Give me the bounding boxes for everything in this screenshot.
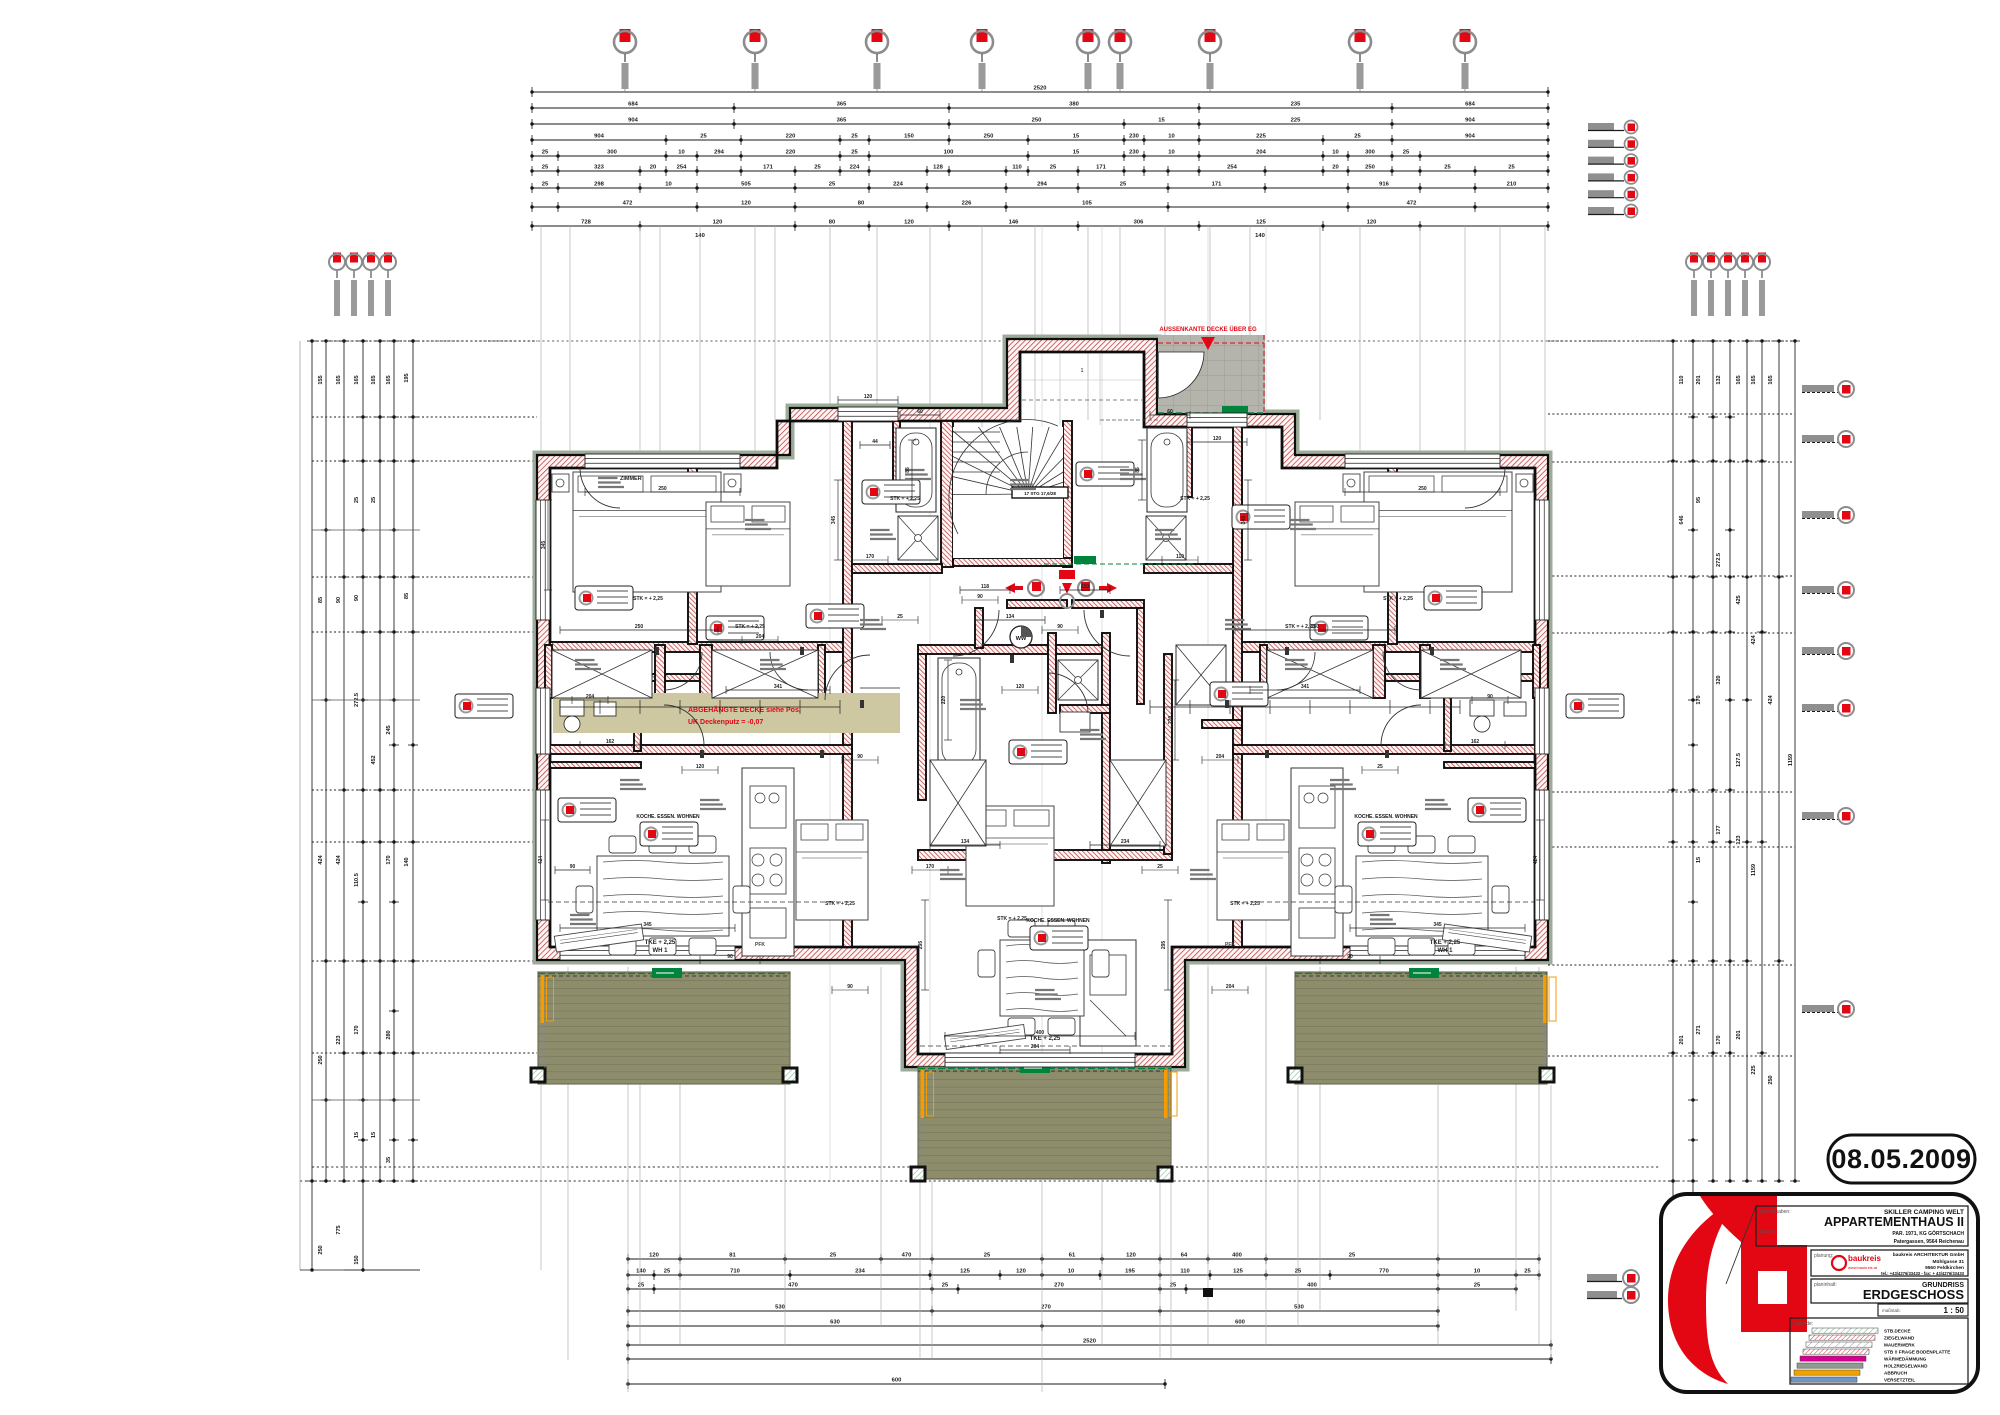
svg-text:10: 10 bbox=[678, 150, 684, 156]
svg-text:904: 904 bbox=[1465, 118, 1475, 124]
svg-text:120: 120 bbox=[1126, 1253, 1136, 1259]
svg-text:470: 470 bbox=[902, 1253, 912, 1259]
svg-text:170: 170 bbox=[1696, 695, 1702, 704]
svg-text:90: 90 bbox=[336, 597, 342, 603]
svg-text:60: 60 bbox=[1167, 409, 1173, 415]
svg-text:85: 85 bbox=[905, 467, 911, 473]
svg-text:STK = + 2,25: STK = + 2,25 bbox=[1383, 596, 1413, 602]
svg-text:224: 224 bbox=[850, 165, 860, 171]
svg-text:Patergassen, 9564 Reichenau: Patergassen, 9564 Reichenau bbox=[1894, 1239, 1964, 1245]
svg-text:KOCHE. ESSEN. WOHNEN: KOCHE. ESSEN. WOHNEN bbox=[1026, 918, 1090, 924]
svg-text:25: 25 bbox=[942, 1283, 949, 1289]
svg-text:VERSETZTEIL: VERSETZTEIL bbox=[1884, 1378, 1915, 1383]
svg-text:95: 95 bbox=[1696, 497, 1702, 503]
svg-text:125: 125 bbox=[960, 1269, 970, 1275]
svg-text:ABBRUCH: ABBRUCH bbox=[1884, 1371, 1908, 1376]
svg-text:365: 365 bbox=[837, 102, 847, 108]
svg-text:323: 323 bbox=[594, 165, 604, 171]
svg-text:WH 1: WH 1 bbox=[1438, 948, 1454, 954]
svg-text:170: 170 bbox=[926, 864, 935, 870]
svg-text:306: 306 bbox=[1134, 220, 1144, 226]
svg-text:125: 125 bbox=[1256, 220, 1266, 226]
svg-text:646: 646 bbox=[1679, 515, 1685, 524]
svg-text:400: 400 bbox=[1036, 1030, 1045, 1036]
svg-text:MAUERWERK: MAUERWERK bbox=[1884, 1343, 1915, 1348]
svg-text:20: 20 bbox=[650, 165, 656, 171]
svg-text:planung:: planung: bbox=[1814, 1253, 1833, 1259]
svg-text:250: 250 bbox=[984, 134, 994, 140]
svg-text:1159: 1159 bbox=[1751, 864, 1757, 876]
svg-text:204: 204 bbox=[586, 694, 595, 700]
svg-text:25: 25 bbox=[1403, 150, 1410, 156]
svg-text:www.baukreis.at: www.baukreis.at bbox=[1848, 1265, 1878, 1270]
svg-text:15: 15 bbox=[1073, 150, 1080, 156]
svg-text:234: 234 bbox=[1121, 839, 1130, 845]
svg-text:15: 15 bbox=[1696, 857, 1702, 863]
svg-text:223: 223 bbox=[336, 1035, 342, 1044]
svg-text:165: 165 bbox=[386, 375, 392, 384]
svg-text:2520: 2520 bbox=[1034, 86, 1047, 92]
svg-text:25: 25 bbox=[1157, 864, 1163, 870]
svg-text:baukreis: baukreis bbox=[1848, 1254, 1881, 1263]
svg-text:25: 25 bbox=[542, 165, 549, 171]
svg-text:WH 1: WH 1 bbox=[653, 948, 669, 954]
svg-text:90: 90 bbox=[727, 954, 733, 960]
svg-text:90: 90 bbox=[847, 984, 853, 990]
svg-text:171: 171 bbox=[1096, 165, 1106, 171]
svg-text:120: 120 bbox=[741, 201, 751, 207]
svg-text:295: 295 bbox=[1161, 941, 1167, 950]
svg-text:424: 424 bbox=[336, 854, 342, 864]
svg-text:20: 20 bbox=[1332, 165, 1338, 171]
svg-text:424: 424 bbox=[1751, 634, 1757, 644]
svg-text:294: 294 bbox=[714, 150, 724, 156]
svg-text:201: 201 bbox=[1679, 1035, 1685, 1044]
svg-text:25: 25 bbox=[851, 134, 858, 140]
svg-text:25: 25 bbox=[1295, 1269, 1302, 1275]
svg-text:294: 294 bbox=[1037, 182, 1047, 188]
svg-text:165: 165 bbox=[1768, 375, 1774, 384]
svg-text:271: 271 bbox=[1696, 1025, 1702, 1034]
svg-text:250: 250 bbox=[658, 486, 667, 492]
svg-text:STK = + 2,25: STK = + 2,25 bbox=[633, 596, 663, 602]
svg-text:125: 125 bbox=[1233, 1269, 1243, 1275]
svg-text:170: 170 bbox=[354, 1025, 360, 1034]
svg-text:120: 120 bbox=[713, 220, 723, 226]
svg-text:775: 775 bbox=[336, 1225, 342, 1234]
svg-text:25: 25 bbox=[700, 134, 707, 140]
svg-text:250: 250 bbox=[318, 1245, 324, 1254]
svg-text:STK = + 2,25: STK = + 2,25 bbox=[1180, 496, 1210, 502]
svg-text:35: 35 bbox=[386, 1157, 392, 1163]
svg-text:PAR. 1971, KG GÖRTSCHACH: PAR. 1971, KG GÖRTSCHACH bbox=[1892, 1230, 1964, 1237]
svg-text:81: 81 bbox=[729, 1253, 736, 1259]
svg-text:118: 118 bbox=[981, 584, 989, 590]
svg-text:128: 128 bbox=[933, 165, 943, 171]
svg-text:400: 400 bbox=[1307, 1283, 1317, 1289]
svg-text:424: 424 bbox=[318, 854, 324, 864]
svg-text:224: 224 bbox=[893, 182, 903, 188]
svg-text:25: 25 bbox=[1444, 165, 1451, 171]
svg-text:110: 110 bbox=[1081, 584, 1089, 590]
svg-text:WÄRMEDÄMMUNG: WÄRMEDÄMMUNG bbox=[1884, 1356, 1927, 1362]
svg-text:171: 171 bbox=[1212, 182, 1222, 188]
svg-text:220: 220 bbox=[786, 150, 796, 156]
svg-text:341: 341 bbox=[1301, 684, 1310, 690]
svg-text:220: 220 bbox=[786, 134, 796, 140]
svg-text:204: 204 bbox=[1226, 984, 1235, 990]
svg-text:25: 25 bbox=[664, 1269, 671, 1275]
svg-text:150: 150 bbox=[354, 1255, 360, 1264]
svg-text:195: 195 bbox=[404, 373, 410, 382]
svg-text:PFK: PFK bbox=[1225, 942, 1235, 948]
svg-text:150: 150 bbox=[904, 134, 914, 140]
svg-text:60: 60 bbox=[917, 409, 923, 415]
svg-text:AUSSENKANTE DECKE ÜBER EG: AUSSENKANTE DECKE ÜBER EG bbox=[1159, 326, 1257, 333]
svg-text:1: 1 bbox=[1081, 368, 1084, 374]
svg-text:424: 424 bbox=[1768, 694, 1774, 704]
svg-text:225: 225 bbox=[1291, 118, 1301, 124]
svg-text:120: 120 bbox=[1016, 1269, 1026, 1275]
svg-text:ZIEGELWAND: ZIEGELWAND bbox=[1884, 1336, 1915, 1341]
svg-text:470: 470 bbox=[788, 1283, 798, 1289]
svg-text:legende:: legende: bbox=[1794, 1321, 1813, 1327]
svg-text:tel.: +43/4276/33433 - fax: +: tel.: +43/4276/33433 - fax: + 43/4276/33… bbox=[1881, 1271, 1965, 1276]
svg-text:STK = + 2,25: STK = + 2,25 bbox=[890, 496, 920, 502]
svg-text:162: 162 bbox=[606, 739, 615, 745]
svg-text:345: 345 bbox=[1433, 922, 1442, 928]
svg-text:530: 530 bbox=[1294, 1305, 1304, 1311]
svg-text:ERDGESCHOSS: ERDGESCHOSS bbox=[1863, 1287, 1964, 1302]
svg-text:165: 165 bbox=[336, 375, 342, 384]
svg-text:15: 15 bbox=[1073, 134, 1080, 140]
svg-text:254: 254 bbox=[677, 165, 687, 171]
svg-text:110: 110 bbox=[1679, 375, 1685, 384]
svg-text:127.5: 127.5 bbox=[1736, 753, 1742, 767]
svg-text:380: 380 bbox=[1069, 102, 1079, 108]
svg-text:110: 110 bbox=[1012, 165, 1021, 171]
svg-text:100: 100 bbox=[944, 150, 954, 156]
svg-text:1159: 1159 bbox=[1788, 754, 1794, 766]
svg-text:254: 254 bbox=[1227, 165, 1237, 171]
svg-text:2520: 2520 bbox=[1083, 1339, 1096, 1345]
svg-text:TKE + 2,25: TKE + 2,25 bbox=[645, 940, 676, 946]
svg-text:HOLZRIEGELWAND: HOLZRIEGELWAND bbox=[1884, 1364, 1928, 1369]
svg-text:15: 15 bbox=[354, 1132, 360, 1138]
svg-text:530: 530 bbox=[775, 1305, 785, 1311]
svg-text:TKE + 2,25: TKE + 2,25 bbox=[1430, 940, 1461, 946]
svg-text:90: 90 bbox=[1347, 954, 1353, 960]
svg-text:904: 904 bbox=[594, 134, 604, 140]
svg-text:630: 630 bbox=[830, 1320, 840, 1326]
svg-text:210: 210 bbox=[1507, 182, 1517, 188]
svg-text:345: 345 bbox=[1241, 516, 1247, 525]
svg-text:250: 250 bbox=[1311, 624, 1320, 630]
svg-text:10: 10 bbox=[1168, 134, 1174, 140]
svg-text:PFK: PFK bbox=[755, 942, 765, 948]
svg-text:STB !! FRAGE BODENPLATTE: STB !! FRAGE BODENPLATTE bbox=[1884, 1350, 1950, 1355]
svg-text:25: 25 bbox=[984, 1253, 991, 1259]
svg-text:155: 155 bbox=[318, 375, 324, 384]
svg-text:170: 170 bbox=[866, 554, 875, 560]
svg-text:planinhalt:: planinhalt: bbox=[1814, 1282, 1837, 1288]
svg-text:25: 25 bbox=[638, 1283, 645, 1289]
svg-text:452: 452 bbox=[371, 755, 377, 764]
svg-text:250: 250 bbox=[1032, 118, 1042, 124]
svg-text:204: 204 bbox=[1031, 1044, 1040, 1050]
svg-text:140: 140 bbox=[1255, 233, 1265, 239]
svg-text:472: 472 bbox=[1407, 201, 1417, 207]
svg-text:10: 10 bbox=[665, 182, 671, 188]
svg-text:25: 25 bbox=[542, 150, 549, 156]
svg-text:710: 710 bbox=[730, 1269, 740, 1275]
svg-text:728: 728 bbox=[581, 220, 591, 226]
svg-text:195: 195 bbox=[1125, 1269, 1135, 1275]
svg-text:270: 270 bbox=[1054, 1283, 1064, 1289]
svg-text:120: 120 bbox=[696, 764, 705, 770]
svg-text:25: 25 bbox=[1508, 165, 1515, 171]
svg-text:204: 204 bbox=[1256, 150, 1266, 156]
svg-text:STK = + 2,25: STK = + 2,25 bbox=[997, 916, 1027, 922]
svg-text:220: 220 bbox=[1168, 716, 1174, 725]
svg-text:85: 85 bbox=[404, 593, 410, 599]
svg-text:505: 505 bbox=[741, 182, 751, 188]
svg-text:25: 25 bbox=[354, 497, 360, 503]
svg-text:bauort:: bauort: bbox=[1760, 1229, 1776, 1235]
svg-text:123: 123 bbox=[1736, 835, 1742, 844]
svg-text:25: 25 bbox=[851, 150, 858, 156]
svg-text:25: 25 bbox=[897, 614, 903, 620]
svg-text:25: 25 bbox=[814, 165, 821, 171]
svg-text:140: 140 bbox=[636, 1269, 646, 1275]
svg-text:08.05.2009: 08.05.2009 bbox=[1831, 1144, 1971, 1174]
svg-text:684: 684 bbox=[1465, 102, 1475, 108]
svg-text:64: 64 bbox=[1181, 1253, 1188, 1259]
svg-text:600: 600 bbox=[1235, 1320, 1245, 1326]
svg-text:250: 250 bbox=[318, 1055, 324, 1064]
svg-text:APPARTEMENTHAUS II: APPARTEMENTHAUS II bbox=[1824, 1215, 1964, 1229]
svg-text:165: 165 bbox=[1736, 375, 1742, 384]
svg-text:225: 225 bbox=[1256, 134, 1266, 140]
svg-text:Mühlgasse 31: Mühlgasse 31 bbox=[1933, 1259, 1965, 1265]
svg-text:345: 345 bbox=[643, 922, 652, 928]
svg-text:25: 25 bbox=[1120, 182, 1127, 188]
svg-text:472: 472 bbox=[623, 201, 633, 207]
svg-text:105: 105 bbox=[1082, 201, 1092, 207]
svg-text:916: 916 bbox=[1379, 182, 1389, 188]
svg-text:298: 298 bbox=[594, 182, 604, 188]
svg-text:120: 120 bbox=[1213, 436, 1222, 442]
svg-text:365: 365 bbox=[837, 118, 847, 124]
svg-text:165: 165 bbox=[354, 375, 360, 384]
svg-text:270: 270 bbox=[1041, 1305, 1051, 1311]
svg-text:KOCHE. ESSEN. WOHNEN: KOCHE. ESSEN. WOHNEN bbox=[636, 814, 700, 820]
svg-text:TKE + 2,25: TKE + 2,25 bbox=[1030, 1036, 1061, 1042]
svg-text:10: 10 bbox=[1474, 1269, 1480, 1275]
svg-text:10: 10 bbox=[1168, 150, 1174, 156]
svg-text:220: 220 bbox=[941, 696, 947, 705]
svg-text:90: 90 bbox=[1057, 624, 1063, 630]
svg-text:165: 165 bbox=[371, 375, 377, 384]
svg-text:90: 90 bbox=[1487, 694, 1493, 700]
svg-text:424: 424 bbox=[538, 856, 544, 865]
svg-text:25: 25 bbox=[542, 182, 549, 188]
svg-text:300: 300 bbox=[607, 150, 617, 156]
svg-text:425: 425 bbox=[1736, 595, 1742, 604]
svg-text:110: 110 bbox=[1176, 554, 1184, 560]
svg-text:345: 345 bbox=[831, 516, 837, 525]
svg-text:STK = + 2,25: STK = + 2,25 bbox=[735, 624, 765, 630]
svg-text:UK Deckenputz = -0,07: UK Deckenputz = -0,07 bbox=[688, 719, 763, 726]
svg-text:245: 245 bbox=[386, 725, 392, 734]
svg-text:25: 25 bbox=[1524, 1269, 1531, 1275]
svg-text:400: 400 bbox=[1232, 1253, 1242, 1259]
svg-text:KOCHE. ESSEN. WOHNEN: KOCHE. ESSEN. WOHNEN bbox=[1354, 814, 1418, 820]
svg-text:170: 170 bbox=[386, 855, 392, 864]
svg-text:85: 85 bbox=[1135, 467, 1141, 473]
svg-text:272.5: 272.5 bbox=[1716, 553, 1722, 567]
svg-text:204: 204 bbox=[756, 634, 765, 640]
svg-text:345: 345 bbox=[541, 541, 547, 550]
svg-text:170: 170 bbox=[1716, 1035, 1722, 1044]
svg-text:770: 770 bbox=[1379, 1269, 1389, 1275]
svg-text:134: 134 bbox=[1006, 614, 1015, 620]
svg-text:204: 204 bbox=[1216, 754, 1225, 760]
svg-text:684: 684 bbox=[628, 102, 638, 108]
svg-text:15: 15 bbox=[371, 1132, 377, 1138]
svg-text:177: 177 bbox=[1716, 825, 1722, 834]
svg-text:25: 25 bbox=[1377, 764, 1383, 770]
svg-text:201: 201 bbox=[1696, 375, 1702, 384]
svg-text:STK = + 2,25: STK = + 2,25 bbox=[1230, 901, 1260, 907]
svg-text:280: 280 bbox=[386, 1030, 392, 1039]
svg-text:226: 226 bbox=[962, 201, 972, 207]
svg-text:201: 201 bbox=[1736, 1030, 1742, 1039]
svg-text:120: 120 bbox=[1367, 220, 1377, 226]
svg-text:90: 90 bbox=[354, 595, 360, 601]
svg-text:120: 120 bbox=[904, 220, 914, 226]
svg-text:10: 10 bbox=[1068, 1269, 1074, 1275]
svg-text:90: 90 bbox=[977, 594, 983, 600]
svg-text:250: 250 bbox=[1418, 486, 1427, 492]
svg-text:15: 15 bbox=[1158, 118, 1165, 124]
svg-text:25: 25 bbox=[1474, 1283, 1481, 1289]
svg-text:25: 25 bbox=[1050, 165, 1057, 171]
svg-text:25: 25 bbox=[1349, 1253, 1356, 1259]
svg-text:90: 90 bbox=[857, 754, 863, 760]
svg-text:225: 225 bbox=[1751, 1065, 1757, 1074]
svg-text:85: 85 bbox=[318, 597, 324, 603]
svg-text:STB.DECKE: STB.DECKE bbox=[1884, 1329, 1911, 1334]
svg-text:320: 320 bbox=[1716, 675, 1722, 684]
svg-text:25: 25 bbox=[1354, 134, 1361, 140]
svg-text:120: 120 bbox=[649, 1253, 659, 1259]
svg-text:230: 230 bbox=[1129, 134, 1139, 140]
svg-text:80: 80 bbox=[829, 220, 835, 226]
svg-text:250: 250 bbox=[1365, 165, 1375, 171]
svg-text:90: 90 bbox=[570, 864, 576, 870]
svg-text:341: 341 bbox=[774, 684, 783, 690]
svg-text:25: 25 bbox=[371, 497, 377, 503]
svg-text:bauvorhaben:: bauvorhaben: bbox=[1760, 1209, 1791, 1215]
svg-text:44: 44 bbox=[872, 439, 878, 445]
svg-text:baukreis ARCHITEKTUR GmbH: baukreis ARCHITEKTUR GmbH bbox=[1893, 1252, 1965, 1258]
svg-text:230: 230 bbox=[1129, 150, 1139, 156]
svg-text:146: 146 bbox=[1009, 220, 1019, 226]
svg-text:132: 132 bbox=[1716, 375, 1722, 384]
svg-text:80: 80 bbox=[858, 201, 864, 207]
svg-text:110: 110 bbox=[1180, 1269, 1189, 1275]
svg-text:140: 140 bbox=[404, 857, 410, 866]
svg-text:120: 120 bbox=[864, 394, 873, 400]
svg-text:234: 234 bbox=[855, 1269, 865, 1275]
svg-text:904: 904 bbox=[1465, 134, 1475, 140]
svg-text:10: 10 bbox=[1332, 150, 1338, 156]
svg-text:134: 134 bbox=[961, 839, 970, 845]
svg-text:STK = + 2,25: STK = + 2,25 bbox=[825, 901, 855, 907]
svg-text:25: 25 bbox=[829, 182, 836, 188]
svg-text:61: 61 bbox=[1069, 1253, 1076, 1259]
svg-text:maßstab:: maßstab: bbox=[1882, 1308, 1901, 1313]
svg-text:424: 424 bbox=[1533, 856, 1539, 865]
svg-text:25: 25 bbox=[830, 1253, 837, 1259]
svg-text:235: 235 bbox=[1291, 102, 1301, 108]
svg-text:295: 295 bbox=[918, 941, 924, 950]
svg-text:162: 162 bbox=[1471, 739, 1480, 745]
svg-text:165: 165 bbox=[1751, 375, 1757, 384]
svg-text:250: 250 bbox=[635, 624, 644, 630]
svg-text:ZIMMER: ZIMMER bbox=[620, 476, 642, 482]
svg-text:120: 120 bbox=[1016, 684, 1025, 690]
svg-text:250: 250 bbox=[1768, 1075, 1774, 1084]
svg-text:904: 904 bbox=[628, 118, 638, 124]
svg-text:1 : 50: 1 : 50 bbox=[1944, 1306, 1965, 1315]
svg-text:110.5: 110.5 bbox=[354, 873, 360, 887]
svg-text:17 STG 17,6/28: 17 STG 17,6/28 bbox=[1024, 491, 1056, 496]
svg-text:171: 171 bbox=[763, 165, 773, 171]
svg-text:600: 600 bbox=[892, 1378, 902, 1384]
svg-text:300: 300 bbox=[1365, 150, 1375, 156]
